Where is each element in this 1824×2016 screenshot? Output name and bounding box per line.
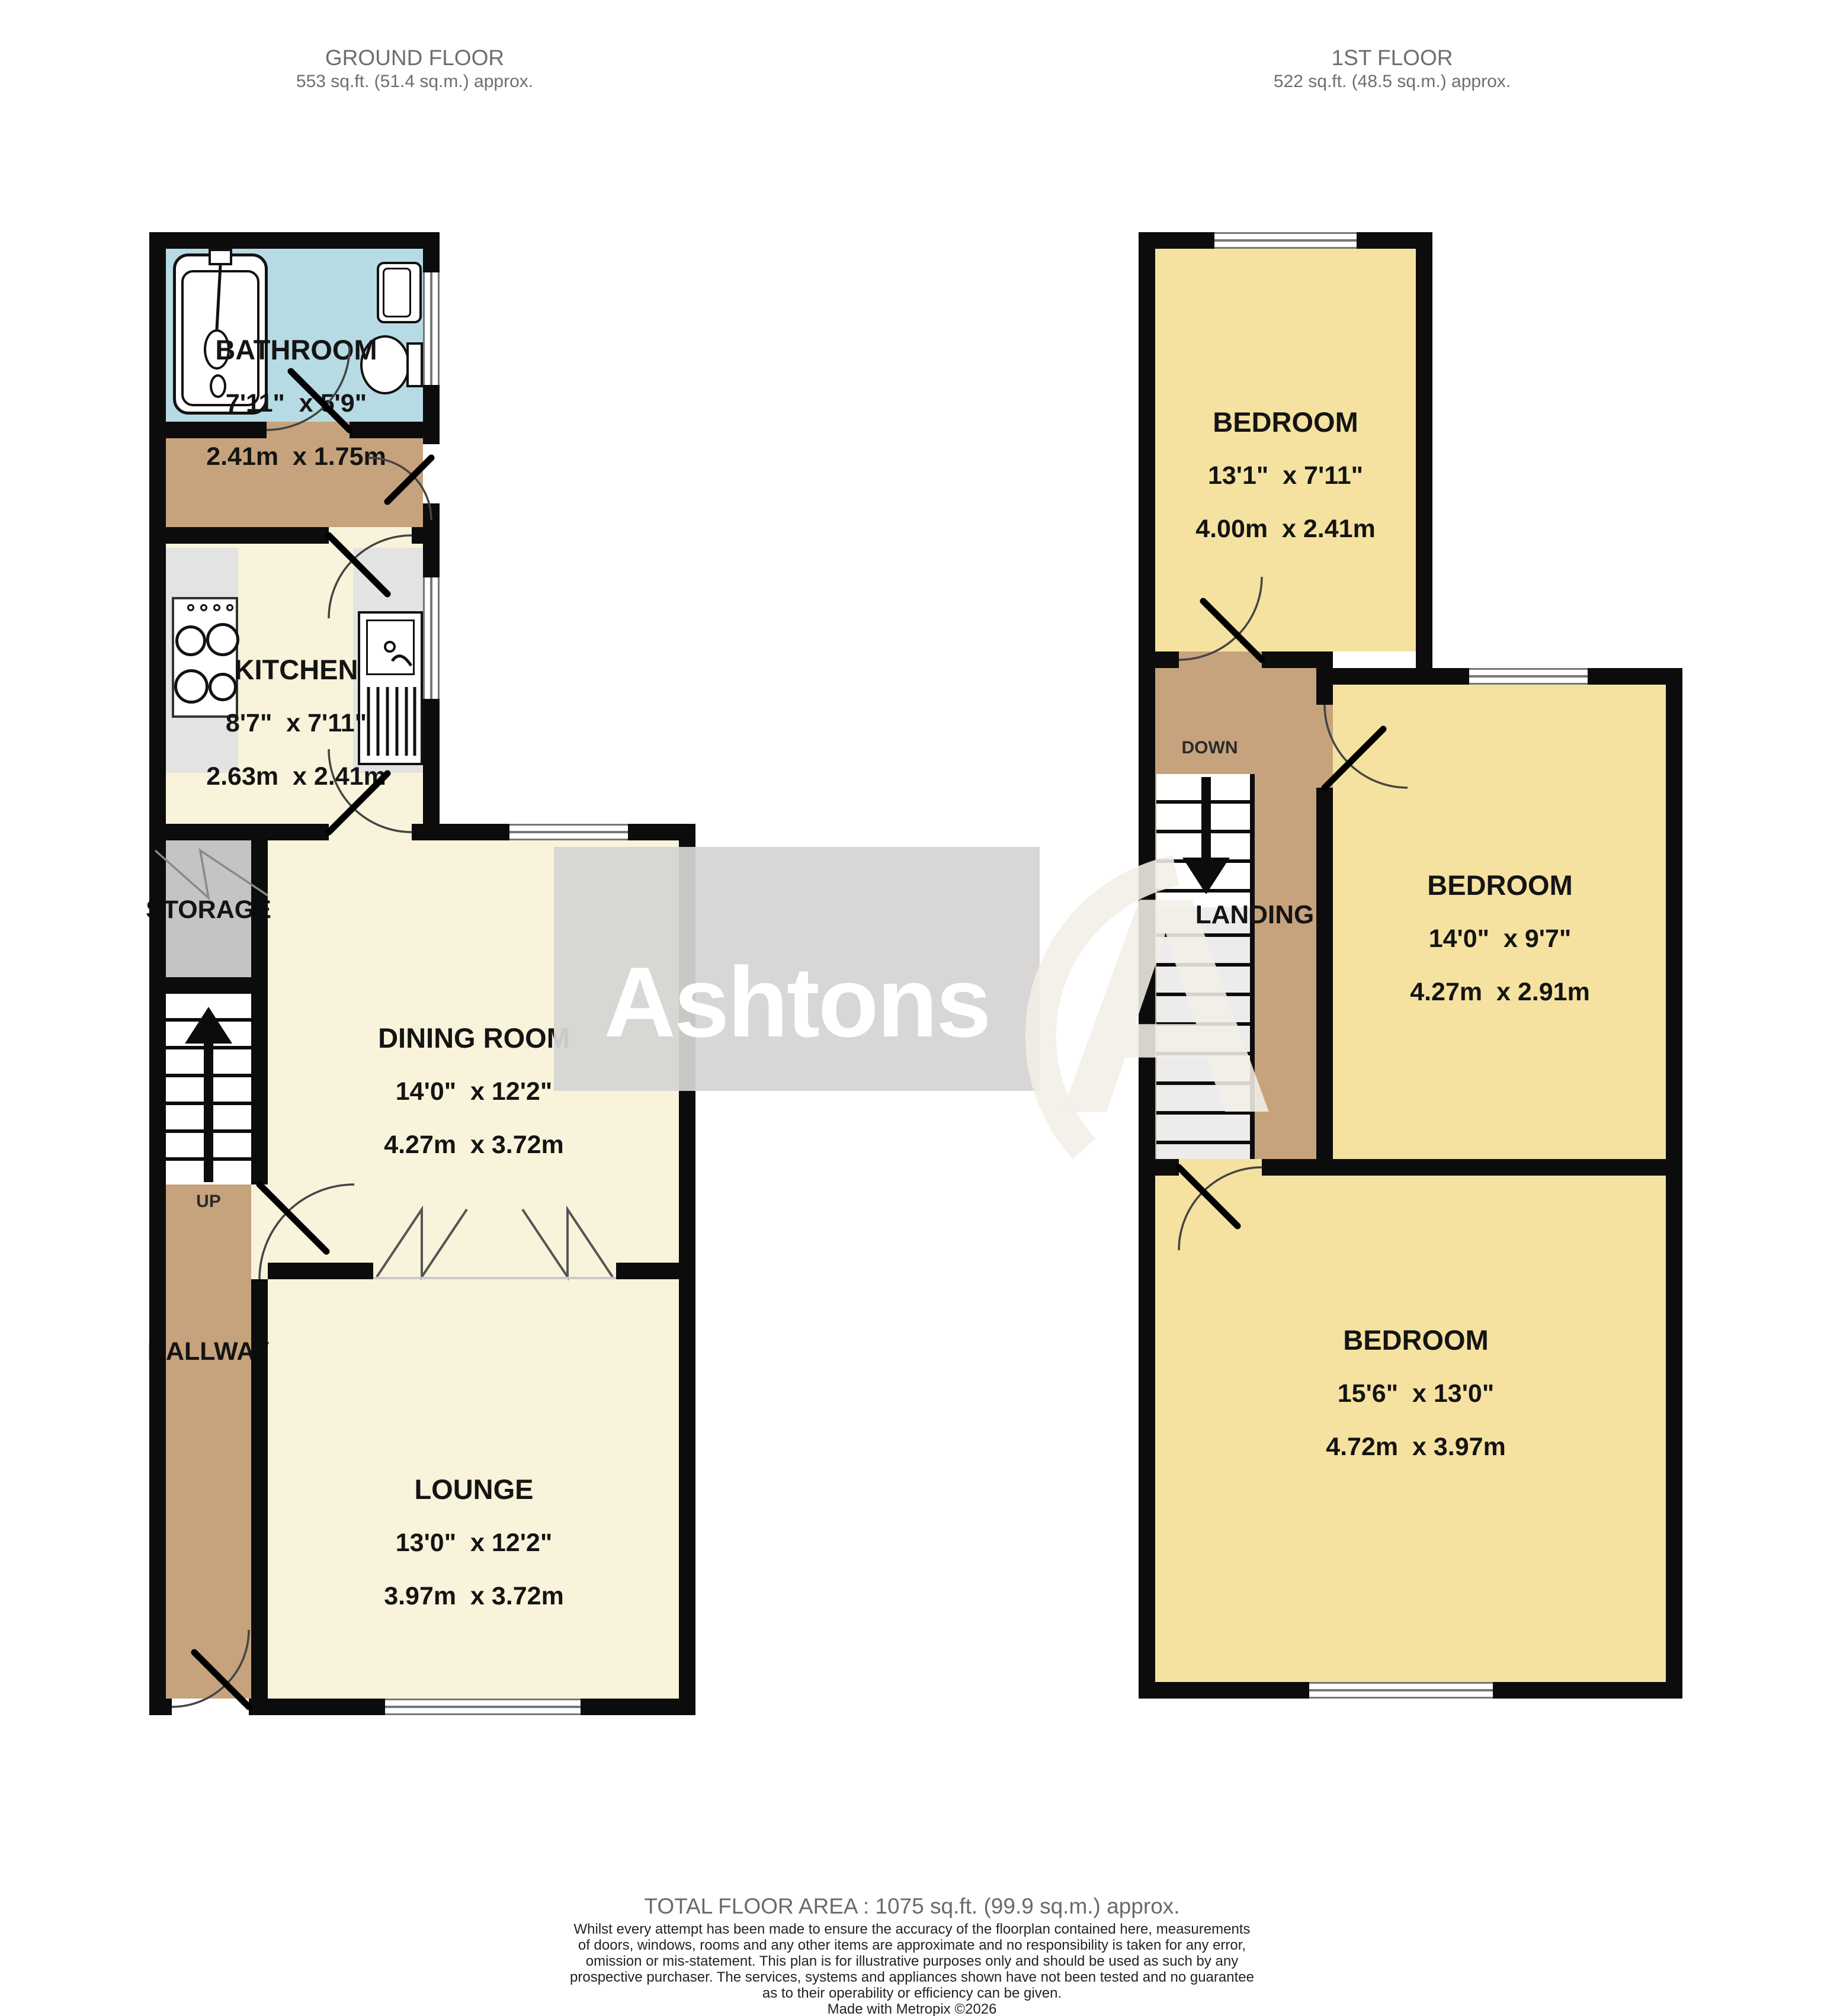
bathroom-sink-basin-icon	[383, 268, 411, 317]
wall	[149, 232, 166, 1715]
lounge-label: LOUNGE 13'0" x 12'2" 3.97m x 3.72m	[384, 1452, 564, 1633]
first-floor-area: 522 sq.ft. (48.5 sq.m.) approx.	[1185, 71, 1599, 92]
bedroom2-threshold	[1316, 705, 1333, 788]
wall	[1666, 668, 1682, 1699]
ground-floor-header: GROUND FLOOR 553 sq.ft. (51.4 sq.m.) app…	[207, 45, 622, 92]
wall	[268, 1263, 373, 1279]
bedroom3-label: BEDROOM 15'6" x 13'0" 4.72m x 3.97m	[1326, 1303, 1506, 1484]
disclaimer-line: prospective purchaser. The services, sys…	[0, 1969, 1824, 1985]
ground-floor-area: 553 sq.ft. (51.4 sq.m.) approx.	[207, 71, 622, 92]
kitchen-dining-threshold	[329, 824, 412, 840]
kitchen-window	[423, 577, 440, 699]
disclaimer-line: of doors, windows, rooms and any other i…	[0, 1937, 1824, 1953]
wall	[149, 527, 329, 544]
dining-window	[509, 824, 628, 840]
disclaimer-line: omission or mis-statement. This plan is …	[0, 1953, 1824, 1969]
kitchen-door-threshold	[329, 527, 412, 544]
bedroom1-threshold	[1179, 651, 1262, 668]
watermark-logo-icon: A	[1054, 852, 1277, 1160]
wall	[149, 824, 329, 840]
hob-knob-icon	[213, 604, 220, 611]
burner-icon	[175, 625, 206, 656]
up-arrow-stem-icon	[204, 1044, 213, 1182]
bedroom1-window	[1214, 232, 1357, 249]
wall	[251, 840, 268, 1184]
bedroom1-label: BEDROOM 13'1" x 7'11" 4.00m x 2.41m	[1195, 385, 1376, 566]
wall	[149, 232, 440, 249]
burner-icon	[174, 669, 209, 704]
total-floor-area: TOTAL FLOOR AREA : 1075 sq.ft. (99.9 sq.…	[0, 1894, 1824, 1919]
down-label: DOWN	[1182, 738, 1238, 758]
ground-floor-title: GROUND FLOOR	[207, 45, 622, 71]
disclaimer: Whilst every attempt has been made to en…	[0, 1921, 1824, 2016]
bedroom2-label: BEDROOM 14'0" x 9'7" 4.27m x 2.91m	[1410, 848, 1590, 1029]
bathroom-label: BATHROOM 7'11" x 5'9" 2.41m x 1.75m	[206, 313, 386, 494]
bedroom2-window	[1469, 668, 1588, 685]
kitchen-label: KITCHEN 8'7" x 7'11" 2.63m x 2.41m	[206, 633, 386, 814]
wall	[1416, 232, 1432, 668]
bath-tap-icon	[209, 249, 232, 265]
lounge-window	[385, 1699, 581, 1715]
first-floor-title: 1ST FLOOR	[1185, 45, 1599, 71]
hob-knob-icon	[200, 604, 207, 611]
up-arrow-head-icon	[185, 1007, 232, 1044]
hob-knob-icon	[187, 604, 194, 611]
wall	[1316, 668, 1333, 705]
toilet-tank-icon	[406, 342, 423, 387]
wall	[149, 977, 268, 994]
wall	[1316, 788, 1333, 1159]
first-floor-header: 1ST FLOOR 522 sq.ft. (48.5 sq.m.) approx…	[1185, 45, 1599, 92]
wall	[581, 1699, 695, 1715]
dining-room-label: DINING ROOM 14'0" x 12'2" 4.27m x 3.72m	[378, 1001, 570, 1182]
bedroom3-window	[1309, 1682, 1493, 1699]
hallway-floor	[166, 1184, 251, 1699]
wall	[249, 1699, 385, 1715]
floorplan-page: GROUND FLOOR 553 sq.ft. (51.4 sq.m.) app…	[0, 0, 1824, 2016]
wall	[251, 1279, 268, 1715]
hob-knob-icon	[226, 604, 233, 611]
disclaimer-line: Whilst every attempt has been made to en…	[0, 1921, 1824, 1937]
wall	[1262, 1159, 1682, 1176]
disclaimer-line: as to their operability or efficiency ca…	[0, 1985, 1824, 2001]
wall	[1262, 651, 1333, 668]
up-label: UP	[196, 1192, 221, 1212]
hall-dining-threshold	[251, 1184, 268, 1279]
credit-line: Made with Metropix ©2026	[0, 2001, 1824, 2016]
dining-lounge-opening-floor	[373, 1263, 616, 1279]
wall	[149, 422, 267, 438]
landing-label: LANDING	[1195, 900, 1314, 930]
bathroom-window	[423, 272, 440, 385]
watermark-brand: Ashtons	[563, 945, 1031, 1060]
